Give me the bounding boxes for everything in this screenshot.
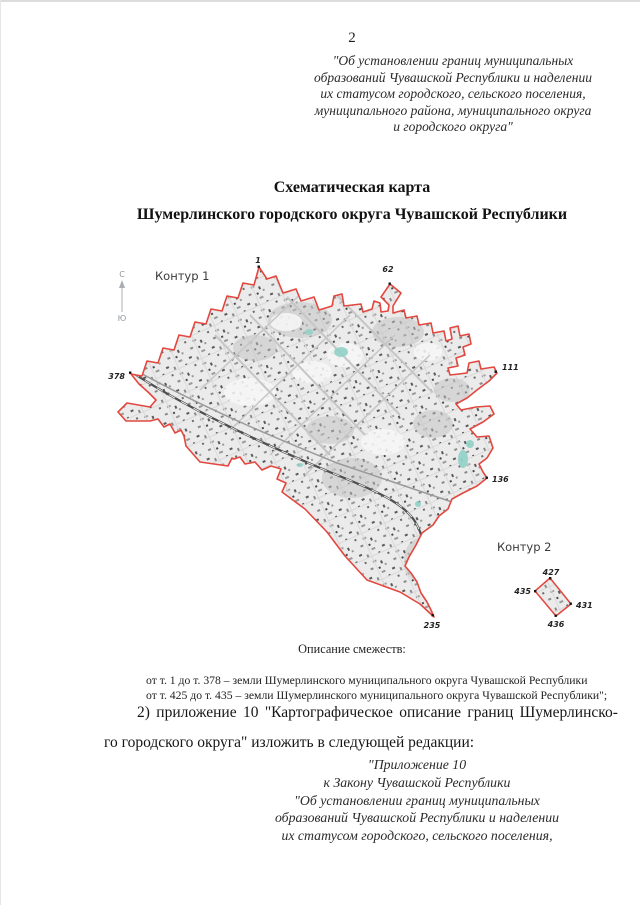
- header-quote-line: образований Чувашской Республики и надел…: [283, 70, 623, 87]
- contour2-shape: [534, 577, 572, 617]
- scan-artifact-left-edge: [0, 0, 1, 905]
- header-quote-line: их статусом городского, сельского поселе…: [283, 86, 623, 103]
- point-label-436: 436: [547, 620, 565, 629]
- footer-quote-line: образований Чувашской Республики и надел…: [257, 809, 577, 827]
- point-label-378: 378: [108, 372, 125, 381]
- contour1-label: Контур 1: [155, 269, 210, 283]
- contour2-boundary: [535, 578, 571, 616]
- header-quote-block: "Об установлении границ муниципальных об…: [283, 53, 623, 136]
- scanned-document-page: { "document": { "page_number": "2", "hea…: [0, 0, 640, 905]
- contour2-label: Контур 2: [497, 540, 552, 554]
- compass-south-label: Ю: [118, 314, 127, 323]
- footer-quote-line: к Закону Чувашской Республики: [257, 774, 577, 792]
- point-label-427: 427: [542, 568, 560, 577]
- point-label-435: 435: [513, 587, 531, 596]
- adjacency-line-2: от т. 425 до т. 435 – земли Шумерлинског…: [146, 688, 607, 703]
- amendment-paragraph-line-2: го городского округа" изложить в следующ…: [104, 734, 474, 752]
- point-label-1: 1: [255, 256, 261, 265]
- map-title: Схематическая карта: [40, 179, 640, 197]
- header-quote-line: и городского округа": [283, 119, 623, 136]
- header-quote-line: "Об установлении границ муниципальных: [283, 53, 623, 70]
- page-number: 2: [60, 30, 640, 47]
- point-label-431: 431: [575, 601, 593, 610]
- footer-quote-line: их статусом городского, сельского поселе…: [257, 827, 577, 845]
- header-quote-line: муниципального района, муниципального ок…: [283, 103, 623, 120]
- adjacency-description: от т. 1 до т. 378 – земли Шумерлинского …: [146, 673, 607, 704]
- point-label-235: 235: [424, 621, 441, 630]
- point-label-111: 111: [502, 363, 519, 372]
- amendment-paragraph-line-1: 2) приложение 10 "Картографическое описа…: [137, 704, 618, 722]
- compass-north-label: С: [119, 270, 125, 279]
- point-label-136: 136: [492, 475, 509, 484]
- adjacency-line-1: от т. 1 до т. 378 – земли Шумерлинского …: [146, 673, 607, 688]
- compass: С Ю: [118, 270, 127, 323]
- schematic-map: С Ю Контур 1 Контур 2 1 62 111 136 235 3…: [95, 250, 595, 640]
- scan-artifact-top-edge: [0, 0, 640, 2]
- map-subtitle: Шумерлинского городского округа Чувашско…: [40, 206, 640, 224]
- point-label-62: 62: [382, 265, 394, 274]
- adjacency-heading: Описание смежеств:: [60, 642, 640, 657]
- footer-quote-line: "Об установлении границ муниципальных: [257, 792, 577, 810]
- footer-quote-line: "Приложение 10: [257, 756, 577, 774]
- footer-quote-block: "Приложение 10 к Закону Чувашской Респуб…: [257, 756, 577, 845]
